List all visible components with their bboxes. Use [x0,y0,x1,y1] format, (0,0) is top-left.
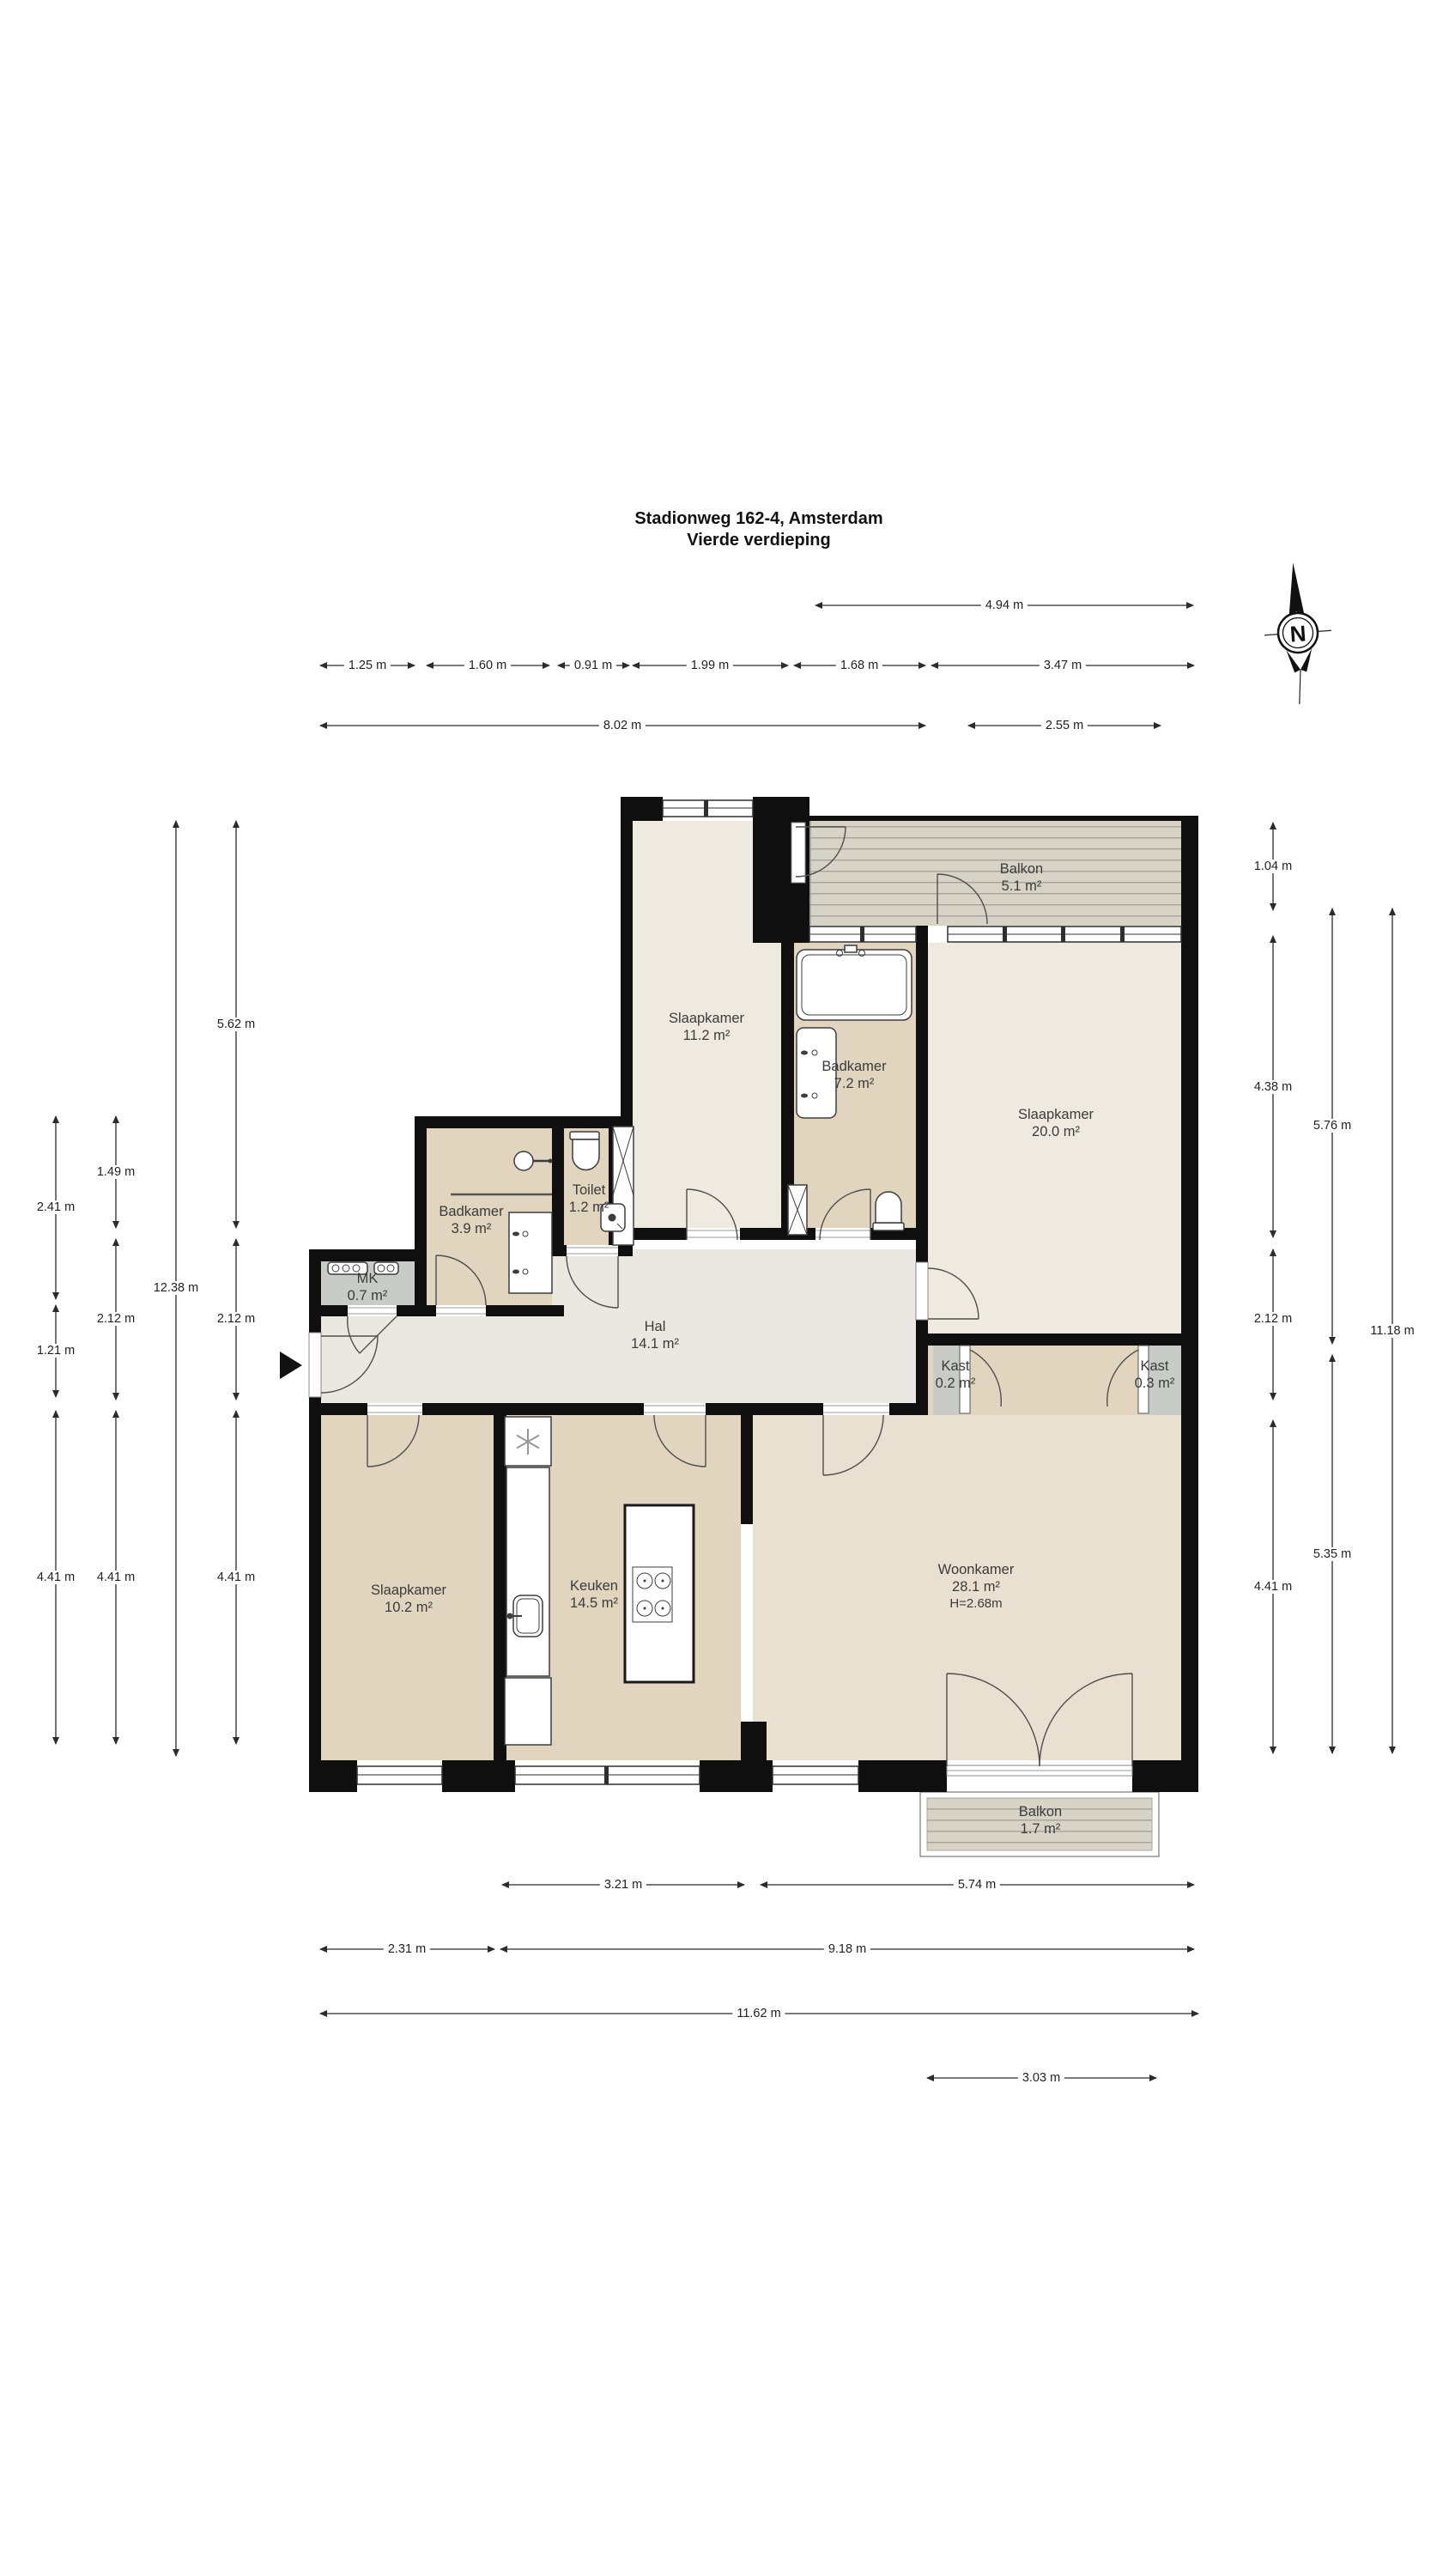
title-floor: Vierde verdieping [634,530,882,551]
window [515,1766,700,1784]
dim-label: 12.38 m [149,1281,203,1295]
compass-n-label: N [1289,620,1307,647]
room-label-toilet: Toilet1.2 m² [569,1182,609,1216]
dim-label: 4.38 m [1250,1080,1296,1094]
dim-label: 4.41 m [1250,1580,1296,1594]
dim-label: 9.18 m [824,1942,870,1956]
dim-label: 3.03 m [1018,2071,1064,2085]
room-label-kast-03: Kast0.3 m² [1135,1358,1175,1392]
shaft [788,1185,807,1235]
room-label-slaapkamer-11: Slaapkamer11.2 m² [669,1010,744,1044]
room-label-keuken: Keuken14.5 m² [570,1577,618,1612]
window [663,800,753,817]
dim-label: 2.12 m [213,1312,259,1326]
dim-label: 3.47 m [1040,659,1086,672]
toilet [873,1192,904,1230]
dim-label: 1.04 m [1250,860,1296,873]
dim-label: 2.31 m [384,1942,430,1956]
dim-label: 0.91 m [570,659,616,672]
fridge [505,1417,551,1466]
entrance-arrow-icon [280,1352,302,1379]
dim-label: 11.62 m [732,2007,785,2020]
dim-label: 8.02 m [599,719,646,732]
bathtub [797,945,912,1020]
room-label-badkamer-3: Badkamer3.9 m² [439,1203,503,1237]
plan-title: Stadionweg 162-4, Amsterdam Vierde verdi… [634,508,882,551]
window [948,927,1181,942]
dim-label: 5.35 m [1309,1547,1355,1561]
dim-label: 1.99 m [687,659,733,672]
room-label-kast-02: Kast0.2 m² [936,1358,976,1392]
french-door-sill [947,1765,1132,1776]
dim-label: 2.41 m [33,1200,79,1214]
dim-label: 11.18 m [1366,1324,1418,1338]
dim-label: 2.12 m [1250,1312,1296,1326]
dim-label: 4.94 m [981,598,1028,612]
dim-label: 5.76 m [1309,1119,1355,1133]
compass-rose-icon: N [1259,560,1336,706]
dim-label: 1.25 m [344,659,391,672]
dim-label: 5.62 m [213,1018,259,1031]
kitchen-counter [506,1467,549,1676]
window [357,1766,442,1784]
title-address: Stadionweg 162-4, Amsterdam [634,508,882,530]
room-label-hal: Hal14.1 m² [631,1318,679,1352]
room-label-slaapkamer-20: Slaapkamer20.0 m² [1018,1106,1094,1140]
dim-label: 4.41 m [93,1571,139,1584]
room-label-mk: MK0.7 m² [348,1270,388,1304]
balkon-5-deck [809,821,1181,926]
room-label-slaapkamer-10: Slaapkamer10.2 m² [371,1582,446,1616]
floorplan-page: N Stadionweg 162-4, Amsterdam Vierde ver… [0,0,1449,2576]
shower-unit [509,1212,552,1293]
dim-label: 1.49 m [93,1165,139,1179]
room-label-woonkamer: Woonkamer28.1 m²H=2.68m [938,1561,1015,1613]
room-label-balkon-5: Balkon5.1 m² [1000,860,1043,895]
dim-label: 2.12 m [93,1312,139,1326]
appliance [505,1678,551,1745]
dim-label: 3.21 m [600,1878,646,1892]
dim-label: 1.68 m [836,659,882,672]
dim-label: 1.21 m [33,1344,79,1358]
toilet [570,1132,599,1170]
front-door-jamb [309,1333,321,1397]
room-label-balkon-17: Balkon1.7 m² [1019,1803,1062,1838]
dim-label: 1.60 m [464,659,511,672]
dim-label: 2.55 m [1041,719,1088,732]
floorplan-drawing: N [0,0,1449,2576]
dim-label: 5.74 m [954,1878,1000,1892]
dim-label: 4.41 m [213,1571,259,1584]
dim-label: 4.41 m [33,1571,79,1584]
room-label-badkamer-7: Badkamer7.2 m² [822,1058,886,1092]
kitchen-island [625,1505,694,1682]
window [809,927,916,942]
window [773,1766,858,1784]
